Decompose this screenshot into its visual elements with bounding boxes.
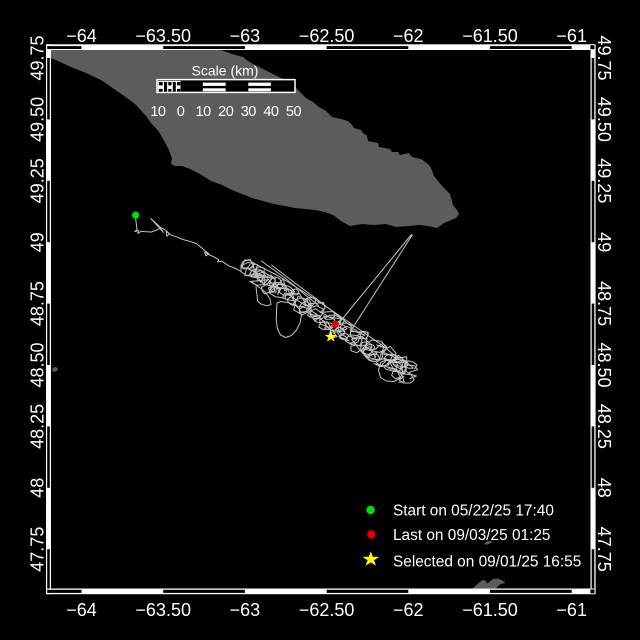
svg-text:Selected on 09/01/25 16:55: Selected on 09/01/25 16:55 xyxy=(393,553,581,570)
svg-text:−64−63.50−63−62.50−62−61.50−61: −64−63.50−63−62.50−62−61.50−61 xyxy=(66,600,587,620)
svg-text:49: 49 xyxy=(27,232,47,252)
svg-text:48: 48 xyxy=(27,478,47,498)
svg-text:48: 48 xyxy=(594,478,614,498)
svg-text:47.75: 47.75 xyxy=(594,527,614,572)
svg-text:−64−63.50−63−62.50−62−61.50−61: −64−63.50−63−62.50−62−61.50−61 xyxy=(66,26,587,46)
svg-text:47.75: 47.75 xyxy=(27,527,47,572)
svg-text:49.50: 49.50 xyxy=(27,97,47,142)
svg-text:49.25: 49.25 xyxy=(594,158,614,203)
svg-text:48.75: 48.75 xyxy=(27,281,47,326)
svg-text:49: 49 xyxy=(594,232,614,252)
svg-text:48.50: 48.50 xyxy=(27,342,47,387)
svg-text:Last on 09/03/25 01:25: Last on 09/03/25 01:25 xyxy=(393,527,550,544)
svg-text:48.25: 48.25 xyxy=(594,404,614,449)
svg-text:49.75: 49.75 xyxy=(27,35,47,80)
svg-text:Scale (km): Scale (km) xyxy=(192,63,259,79)
svg-text:48.25: 48.25 xyxy=(27,404,47,449)
svg-text:Start on 05/22/25 17:40: Start on 05/22/25 17:40 xyxy=(393,503,554,520)
svg-text:49.50: 49.50 xyxy=(594,97,614,142)
svg-text:49.25: 49.25 xyxy=(27,158,47,203)
svg-text:49.75: 49.75 xyxy=(594,35,614,80)
svg-text:48.75: 48.75 xyxy=(594,281,614,326)
svg-text:48.50: 48.50 xyxy=(594,342,614,387)
